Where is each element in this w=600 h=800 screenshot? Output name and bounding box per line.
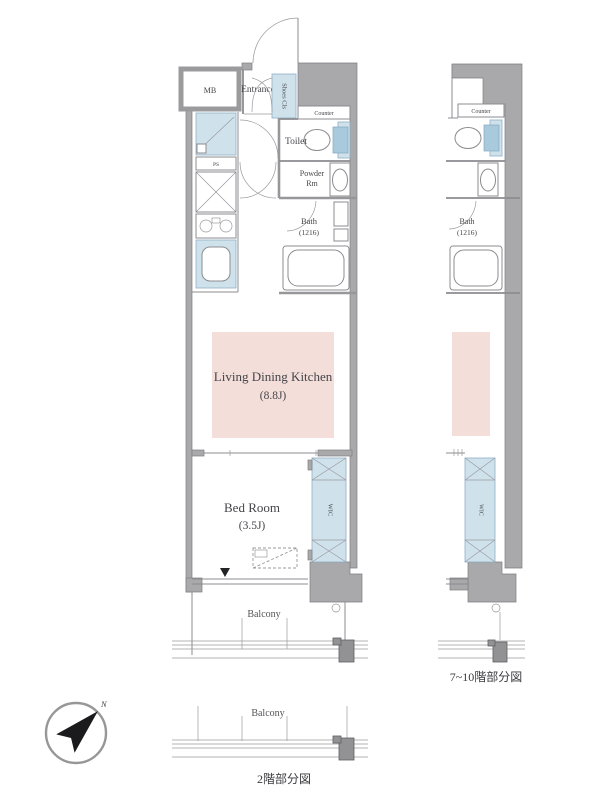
sub-ldk-area xyxy=(452,332,490,436)
bath-label-2: (1216) xyxy=(299,228,319,237)
sub-wic-label: WIC xyxy=(478,504,484,516)
walk-in-closet: WIC xyxy=(308,458,346,562)
hall-door-arc-2 xyxy=(240,162,276,198)
sink-bowl xyxy=(202,247,230,281)
sub-bath-label-2: (1216) xyxy=(457,228,477,237)
lowered-ceiling-diagonal xyxy=(253,548,297,568)
bed-room: Bed Room (3.5J) xyxy=(192,500,308,584)
bedroom-label-1: Bed Room xyxy=(224,500,280,515)
floor-plan-drawing: MB Entrance Shoes Cls Counter xyxy=(0,0,600,800)
vanity-basin xyxy=(333,169,348,191)
wic-label: WIC xyxy=(327,504,334,517)
wic-jamb-bottom xyxy=(308,550,312,560)
meter-box: MB xyxy=(181,69,239,109)
powder-label-2: Rm xyxy=(306,179,318,188)
balcony-divider-foot xyxy=(333,638,341,645)
living-dining-kitchen: Living Dining Kitchen (8.8J) xyxy=(212,332,334,438)
sub-drain-icon xyxy=(492,604,500,612)
wall-left xyxy=(186,110,192,592)
lowered-ceiling-mark xyxy=(253,548,297,568)
compass-needle xyxy=(56,702,107,753)
sub-divider-foot xyxy=(488,640,495,646)
toilet-room: Toilet xyxy=(240,120,350,158)
bedroom-label-2: (3.5J) xyxy=(239,520,266,532)
shoes-closet-label: Shoes Cls xyxy=(281,83,288,109)
sub-bathtub-inner xyxy=(454,250,498,286)
compass-icon: N xyxy=(46,699,108,763)
counter: Counter xyxy=(298,106,350,119)
bathtub-inner xyxy=(288,250,344,286)
bath-label-1: Bath xyxy=(301,216,318,226)
compass-north-label: N xyxy=(100,699,108,709)
sub-balcony-edge xyxy=(438,604,525,662)
sub-toilet xyxy=(446,118,505,161)
lower-balcony-label: Balcony xyxy=(251,708,284,719)
entrance-door-arc xyxy=(253,18,298,63)
sub-bath-label-1: Bath xyxy=(459,217,474,226)
sub-toilet-tank xyxy=(484,125,499,151)
sub-counter-label: Counter xyxy=(471,109,490,115)
main-floor-plan: MB Entrance Shoes Cls Counter xyxy=(172,18,368,662)
sub-counter: Counter xyxy=(458,104,504,117)
shoes-door-arc-1 xyxy=(252,78,272,112)
sub-vanity-basin xyxy=(481,169,496,191)
lower-sub-plan-caption: 2階部分図 xyxy=(257,771,311,786)
meter-box-label: MB xyxy=(204,86,216,95)
wall-top-left xyxy=(242,63,252,70)
sliding-partition xyxy=(204,450,318,456)
ldk-label-1: Living Dining Kitchen xyxy=(214,369,333,384)
entrance-hall: Entrance Shoes Cls xyxy=(241,70,296,118)
powder-room: Powder Rm xyxy=(240,162,350,198)
upper-sub-plan-caption: 7~10階部分図 xyxy=(450,669,523,684)
counter-label: Counter xyxy=(314,111,333,117)
corridor-door-arc xyxy=(240,120,278,158)
ldk-label-2: (8.8J) xyxy=(260,390,287,402)
bath-stool xyxy=(334,229,348,241)
floor-plan-page: MB Entrance Shoes Cls Counter xyxy=(0,0,600,800)
toilet-tank xyxy=(333,127,348,153)
stove xyxy=(196,214,236,238)
door-swing-arc xyxy=(253,18,298,63)
pipe-space-label: PS xyxy=(213,162,219,168)
wall-foot-left xyxy=(186,578,202,592)
main-balcony: Balcony xyxy=(172,592,368,662)
sub-toilet-bowl xyxy=(455,128,481,149)
powder-label-1: Powder xyxy=(300,169,325,178)
ldk-area xyxy=(212,332,334,438)
upper-sub-plan: Counter Bath (1216) xyxy=(438,64,525,684)
toilet-bowl xyxy=(304,130,330,151)
wic-jamb-top xyxy=(308,460,312,470)
kitchen: PS xyxy=(196,113,236,288)
drain-icon xyxy=(332,604,340,612)
lower-sub-plan: Balcony 2階部分図 xyxy=(172,706,368,786)
shoes-door-arc-2 xyxy=(252,78,272,112)
hall-door-arc-1 xyxy=(240,162,276,198)
opening-marker-icon xyxy=(220,568,230,577)
balcony-label: Balcony xyxy=(247,609,280,620)
bath-room: Bath (1216) xyxy=(283,201,349,290)
bath-counter xyxy=(334,202,348,226)
lower-divider-foot xyxy=(333,736,341,743)
lowered-ceiling-tag xyxy=(255,550,267,557)
partition-right-piece xyxy=(318,450,352,456)
partition-left-piece xyxy=(192,450,204,456)
toilet-label: Toilet xyxy=(285,137,307,147)
washer-pan-corner xyxy=(197,144,206,153)
